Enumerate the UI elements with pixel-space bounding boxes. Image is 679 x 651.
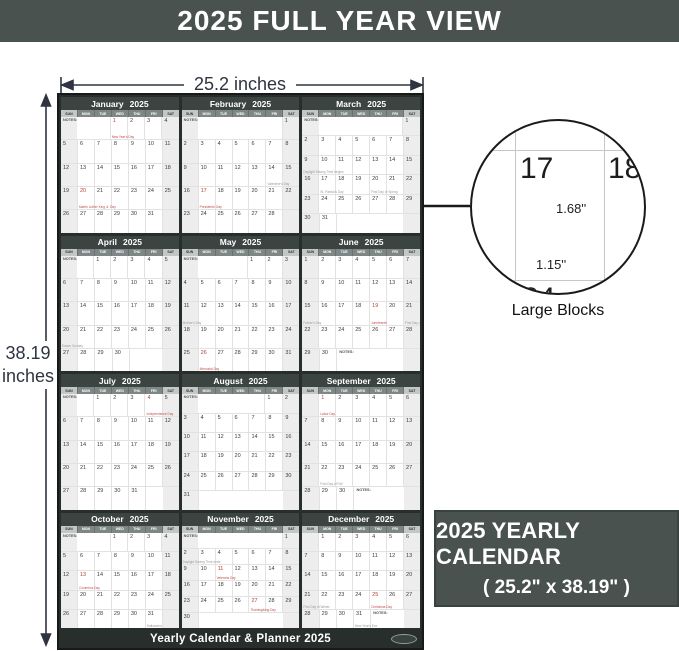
day-number: 22 (114, 592, 120, 598)
day-cell: 25Christmas Day (370, 591, 387, 609)
day-cell: 2 (266, 256, 283, 278)
week-row: 21First Day of Winter22232425Christmas D… (302, 591, 420, 610)
day-number: 5 (201, 280, 204, 286)
day-cell: 26 (61, 610, 78, 628)
day-cell: 13Columbus Day (78, 571, 95, 589)
day-number: 6 (372, 137, 375, 143)
day-number: 16 (321, 303, 327, 309)
empty-cell (77, 256, 94, 278)
day-number: 19 (355, 176, 361, 182)
week-row: 282930NOTES: (302, 487, 420, 509)
day-number: 9 (131, 553, 134, 559)
day-number: 15 (321, 572, 327, 578)
weekday-label: MON (78, 387, 95, 394)
day-cell: 3 (199, 140, 216, 162)
height-arrowhead-bottom (42, 634, 51, 645)
day-cell: 2 (336, 533, 353, 551)
day-cell: 2 (283, 394, 299, 412)
weekday-header-row: SUNMONTUEWEDTHUFRISAT (302, 526, 420, 533)
weekday-label: SAT (163, 387, 179, 394)
day-cell: 8 (319, 417, 336, 439)
notes-label: NOTES: (356, 488, 370, 492)
month-year: 2025 (365, 237, 384, 247)
weekday-label: THU (370, 249, 387, 256)
day-cell: 28 (302, 610, 319, 628)
day-number: 17 (131, 442, 137, 448)
day-number: 2 (304, 137, 307, 143)
weekday-header-row: SUNMONTUEWEDTHUFRISAT (61, 110, 179, 117)
day-number: 27 (251, 598, 257, 604)
day-number: 6 (235, 415, 238, 421)
day-number: 4 (184, 280, 187, 286)
day-cell: 28 (404, 326, 420, 348)
empty-cell (354, 214, 371, 232)
day-number: 26 (355, 196, 361, 202)
empty-cell (163, 610, 179, 628)
day-cell: 4 (162, 533, 178, 551)
day-cell: 17 (146, 164, 163, 186)
notes-label: NOTES: (184, 534, 198, 538)
day-number: 21 (304, 465, 310, 471)
day-number: 12 (389, 553, 395, 559)
week-row: 12131415161718 (61, 164, 179, 187)
day-number: 28 (97, 611, 103, 617)
empty-cell (163, 487, 179, 509)
day-number: 8 (114, 553, 117, 559)
weekday-label: THU (249, 526, 266, 533)
day-cell: 12 (353, 156, 370, 174)
day-cell: 7 (78, 417, 95, 439)
week-row: 23242526272829 (302, 195, 420, 214)
day-number: 17 (285, 303, 291, 309)
day-number: 8 (97, 280, 100, 286)
weekday-label: THU (249, 110, 266, 117)
day-cell: 26 (216, 472, 233, 490)
day-number: 22 (321, 592, 327, 598)
day-cell: 22 (283, 581, 299, 596)
day-cell: 26 (163, 464, 179, 486)
week-row: 567891011 (61, 552, 179, 571)
day-cell: 26 (387, 464, 404, 486)
empty-cell (354, 349, 371, 371)
empty-cell (249, 613, 266, 628)
day-number: 14 (268, 165, 274, 171)
day-cell: 3 (128, 394, 145, 416)
weekday-label: SAT (163, 249, 179, 256)
day-cell: 30 (266, 349, 283, 371)
day-number: 24 (148, 592, 154, 598)
day-cell: 3 (182, 414, 199, 432)
day-number: 7 (304, 553, 307, 559)
day-number: 2 (113, 395, 116, 401)
day-cell: 31 (182, 491, 200, 509)
day-number: 21 (97, 188, 103, 194)
day-cell: 8 (249, 279, 266, 301)
day-number: 18 (372, 572, 378, 578)
day-number: 21 (268, 582, 274, 588)
empty-cell (146, 349, 162, 371)
month-year: 2025 (123, 237, 142, 247)
magnified-date-24: 24 (522, 282, 555, 295)
day-cell: 13 (404, 417, 420, 439)
holiday-label: Christmas Day (371, 605, 392, 609)
weekday-label: TUE (336, 387, 353, 394)
day-cell: 16 (302, 175, 319, 193)
day-cell: 6 (249, 549, 266, 564)
week-row: 1617Presidents' Day1819202122 (182, 187, 300, 210)
day-cell: 19 (163, 302, 179, 324)
day-cell: 17 (353, 441, 370, 463)
month-year: 2025 (130, 99, 149, 109)
day-number: 14 (268, 566, 274, 572)
day-cell: 21First Day of Summer (404, 302, 420, 324)
day-cell: 10 (283, 279, 299, 301)
empty-cell (302, 533, 319, 551)
weekday-label: WED (353, 110, 370, 117)
empty-cell (404, 610, 420, 628)
day-cell: 7 (78, 279, 95, 301)
day-number: 22 (251, 327, 257, 333)
day-cell: 21 (233, 326, 250, 348)
day-number: 10 (321, 157, 327, 163)
empty-cell (388, 610, 404, 628)
day-number: 2 (338, 534, 341, 540)
day-number: 2 (321, 257, 324, 263)
day-cell: 17 (199, 581, 216, 596)
day-number: 27 (235, 473, 241, 479)
magnified-gridline-horizontal-bottom (472, 280, 644, 281)
week-row: 17181920212223 (182, 452, 300, 471)
month-year: 2025 (377, 376, 396, 386)
week-row: 2345678 (302, 136, 420, 155)
day-number: 3 (147, 118, 150, 124)
weekday-label: SAT (283, 249, 299, 256)
day-cell: 7 (249, 414, 266, 432)
day-number: 25 (184, 350, 190, 356)
weekday-label: MON (319, 387, 336, 394)
day-cell: 23 (336, 591, 353, 609)
day-number: 16 (338, 572, 344, 578)
day-number: 11 (148, 280, 154, 286)
day-cell: 7 (95, 140, 112, 162)
weekday-label: SUN (302, 249, 319, 256)
day-cell: 9Daylight Saving Time begins (302, 156, 319, 174)
day-number: 7 (304, 418, 307, 424)
weekday-label: WED (112, 110, 129, 117)
day-cell: 4 (145, 256, 162, 278)
day-number: 30 (115, 350, 121, 356)
day-number: 7 (268, 141, 271, 147)
day-cell: 24 (182, 472, 199, 490)
day-number: 29 (268, 473, 274, 479)
day-cell: 3 (353, 394, 370, 416)
weekday-header-row: SUNMONTUEWEDTHUFRISAT (182, 526, 300, 533)
month-body: NOTES:1234567891011121314151617181920212… (182, 394, 300, 510)
day-cell: 6 (78, 552, 95, 570)
month-panel-october: October2025SUNMONTUEWEDTHUFRISATNOTES:12… (61, 513, 179, 628)
day-number: 19 (372, 303, 378, 309)
empty-cell (130, 349, 146, 371)
day-cell: 18 (163, 164, 179, 186)
day-cell: 10 (353, 552, 370, 570)
holiday-label: Mother's Day (183, 321, 202, 325)
day-number: 7 (406, 257, 409, 263)
day-cell: 10 (129, 417, 146, 439)
empty-cell (369, 117, 386, 135)
magnified-gridline-horizontal-top (472, 150, 644, 151)
day-number: 15 (304, 303, 310, 309)
day-number: 16 (114, 442, 120, 448)
empty-cell (265, 533, 283, 548)
day-number: 16 (131, 165, 137, 171)
empty-cell (352, 117, 369, 135)
day-number: 9 (285, 415, 288, 421)
holiday-label: Memorial Day (200, 367, 220, 371)
week-row: 1617St. Patrick's Day181920First Day of … (302, 175, 420, 194)
day-number: 29 (114, 211, 120, 217)
holiday-label: Labor Day (320, 412, 335, 416)
day-number: 9 (184, 566, 187, 572)
day-number: 29 (97, 488, 103, 494)
day-number: 9 (184, 165, 187, 171)
weekday-label: WED (112, 526, 129, 533)
day-number: 29 (114, 611, 120, 617)
day-cell: 16 (112, 441, 129, 463)
day-number: 23 (338, 592, 344, 598)
week-row: 91011Veterans Day12131415 (182, 565, 300, 581)
product-image: 2025 FULL YEAR VIEW 25.2 inches 38.19 in… (0, 0, 679, 651)
day-number: 25 (372, 465, 378, 471)
empty-cell (163, 210, 179, 232)
month-body: NOTES:12Daylight Saving Time ends3456789… (182, 533, 300, 628)
day-cell: 18 (163, 571, 179, 589)
day-cell: 19 (387, 441, 404, 463)
day-cell: 25 (146, 464, 163, 486)
weekday-label: FRI (387, 249, 404, 256)
month-year: 2025 (255, 514, 274, 524)
day-cell: 31 (283, 349, 299, 371)
day-number: 3 (201, 141, 204, 147)
brand-logo (391, 634, 417, 644)
day-number: 27 (80, 211, 86, 217)
day-number: 1 (321, 395, 324, 401)
day-number: 20 (63, 327, 69, 333)
month-header: September2025 (302, 374, 420, 387)
week-row: 20212223242526 (61, 464, 179, 487)
day-cell: 6 (370, 136, 387, 154)
day-number: 12 (235, 165, 241, 171)
day-cell: 15 (112, 571, 129, 589)
weekday-label: MON (78, 110, 95, 117)
weekday-label: TUE (336, 526, 353, 533)
day-cell: 12 (61, 164, 78, 186)
weekday-label: SAT (163, 110, 179, 117)
day-number: 4 (201, 415, 204, 421)
day-number: 12 (63, 572, 69, 578)
day-number: 15 (114, 165, 120, 171)
day-cell: 27 (61, 349, 78, 371)
holiday-label: Columbus Day (79, 586, 100, 590)
weekday-label: WED (353, 387, 370, 394)
day-number: 1 (96, 395, 99, 401)
day-number: 14 (389, 157, 395, 163)
weekday-label: SAT (283, 110, 299, 117)
day-cell: 10 (146, 140, 163, 162)
day-cell: 20First Day of Spring (370, 175, 387, 193)
day-cell: 27 (404, 464, 420, 486)
day-cell: 10 (199, 164, 216, 186)
height-dimension-value: 38.19 (5, 342, 50, 365)
day-cell: 1 (265, 394, 283, 412)
day-cell: 4 (370, 533, 387, 551)
day-number: 23 (321, 327, 327, 333)
week-row: NOTES:123 (182, 256, 300, 279)
day-number: 11 (201, 434, 207, 440)
day-number: 12 (165, 418, 171, 424)
day-number: 28 (268, 211, 274, 217)
day-number: 31 (148, 211, 154, 217)
week-row: 27282930 (61, 349, 179, 371)
day-cell: 14 (95, 164, 112, 186)
day-cell: 2 (182, 140, 199, 162)
day-number: 7 (389, 137, 392, 143)
day-cell: 25 (353, 326, 370, 348)
empty-cell (283, 613, 300, 628)
month-year: 2025 (122, 376, 141, 386)
day-cell: 24 (353, 591, 370, 609)
day-cell: 6 (78, 140, 95, 162)
month-name: February (210, 99, 246, 109)
day-number: 3 (321, 137, 324, 143)
day-cell: 23 (319, 326, 336, 348)
day-cell: 1New Year's Day (111, 117, 128, 139)
weekday-label: FRI (146, 249, 163, 256)
day-number: 20 (80, 592, 86, 598)
day-cell: 20 (216, 326, 233, 348)
month-body: 1Labor Day234567891011121314151617181920… (302, 394, 420, 510)
day-number: 15 (97, 442, 103, 448)
holiday-label: Halloween (147, 624, 162, 628)
month-header: October2025 (61, 513, 179, 526)
day-number: 21 (97, 592, 103, 598)
day-cell: 7 (404, 256, 420, 278)
day-number: 8 (304, 280, 307, 286)
day-number: 17 (321, 176, 327, 182)
day-cell: 6 (249, 140, 266, 162)
week-row: 232425262728 (182, 210, 300, 232)
holiday-label: Juneteenth (371, 321, 387, 325)
day-number: 3 (355, 395, 358, 401)
weekday-label: MON (199, 526, 216, 533)
day-cell: 26 (370, 326, 387, 348)
notes-label: NOTES: (304, 118, 318, 122)
day-cell: 17 (129, 302, 146, 324)
empty-cell (249, 491, 266, 509)
day-cell: 13 (249, 565, 266, 580)
day-cell: 17St. Patrick's Day (319, 175, 336, 193)
day-cell: 2 (111, 256, 128, 278)
day-number: 15 (321, 442, 327, 448)
day-number: 9 (131, 141, 134, 147)
weekday-label: MON (319, 110, 336, 117)
weekday-label: FRI (146, 387, 163, 394)
day-number: 31 (184, 492, 190, 498)
week-row: 2930NOTES: (302, 349, 420, 371)
block-height-measurement: 1.68'' (556, 201, 586, 216)
day-cell: 9 (336, 552, 353, 570)
day-cell: 23 (302, 195, 319, 213)
month-header: December2025 (302, 513, 420, 526)
day-number: 12 (165, 280, 171, 286)
empty-cell (283, 210, 299, 232)
day-number: 24 (201, 598, 207, 604)
day-cell: 27 (249, 210, 266, 232)
day-number: 20 (251, 582, 257, 588)
calendar-poster: January2025SUNMONTUEWEDTHUFRISATNOTES:1N… (57, 93, 424, 650)
day-cell: 7 (302, 417, 319, 439)
day-number: 28 (304, 488, 310, 494)
day-cell: 26 (61, 210, 78, 232)
day-cell: 21 (266, 581, 283, 596)
notes-label: NOTES: (373, 611, 387, 615)
empty-cell: NOTES: (337, 349, 354, 371)
day-cell: 3 (145, 117, 162, 139)
day-number: 14 (235, 303, 241, 309)
day-cell: 7 (302, 552, 319, 570)
day-cell: 19 (387, 571, 404, 589)
day-cell: 8 (95, 279, 112, 301)
day-number: 14 (406, 280, 412, 286)
day-cell: 11 (370, 417, 387, 439)
day-number: 3 (338, 257, 341, 263)
month-name: October (91, 514, 124, 524)
day-cell: 9 (129, 552, 146, 570)
weekday-header-row: SUNMONTUEWEDTHUFRISAT (61, 249, 179, 256)
day-number: 9 (338, 553, 341, 559)
day-number: 6 (80, 141, 83, 147)
day-number: 15 (285, 566, 291, 572)
day-cell: 26 (163, 326, 179, 348)
day-cell: 20Martin Luther King Jr. Day (78, 187, 95, 209)
day-number: 20 (389, 303, 395, 309)
day-cell: 7 (95, 552, 112, 570)
day-cell: 5 (61, 552, 78, 570)
empty-cell (403, 214, 420, 232)
day-number: 15 (251, 303, 257, 309)
day-cell: 2 (111, 394, 128, 416)
day-number: 2 (285, 395, 288, 401)
weekday-label: SUN (302, 110, 319, 117)
day-cell: 11 (146, 417, 163, 439)
day-cell: 30 (182, 613, 200, 628)
holiday-label: Thanksgiving Day (250, 608, 275, 612)
empty-cell (93, 533, 110, 551)
week-row: 9Daylight Saving Time begins101112131415 (302, 156, 420, 175)
month-header: November2025 (182, 513, 300, 526)
empty-cell (266, 491, 283, 509)
day-cell: 6 (61, 279, 78, 301)
day-cell: 15 (112, 164, 129, 186)
day-number: 3 (184, 415, 187, 421)
day-cell: 22 (249, 326, 266, 348)
day-number: 16 (285, 434, 291, 440)
weekday-label: FRI (387, 526, 404, 533)
day-number: 22 (321, 465, 327, 471)
day-number: 4 (372, 395, 375, 401)
day-cell: 26 (353, 195, 370, 213)
week-row: NOTES:1234Independence Day5 (61, 394, 179, 417)
day-cell: 11 (163, 552, 179, 570)
